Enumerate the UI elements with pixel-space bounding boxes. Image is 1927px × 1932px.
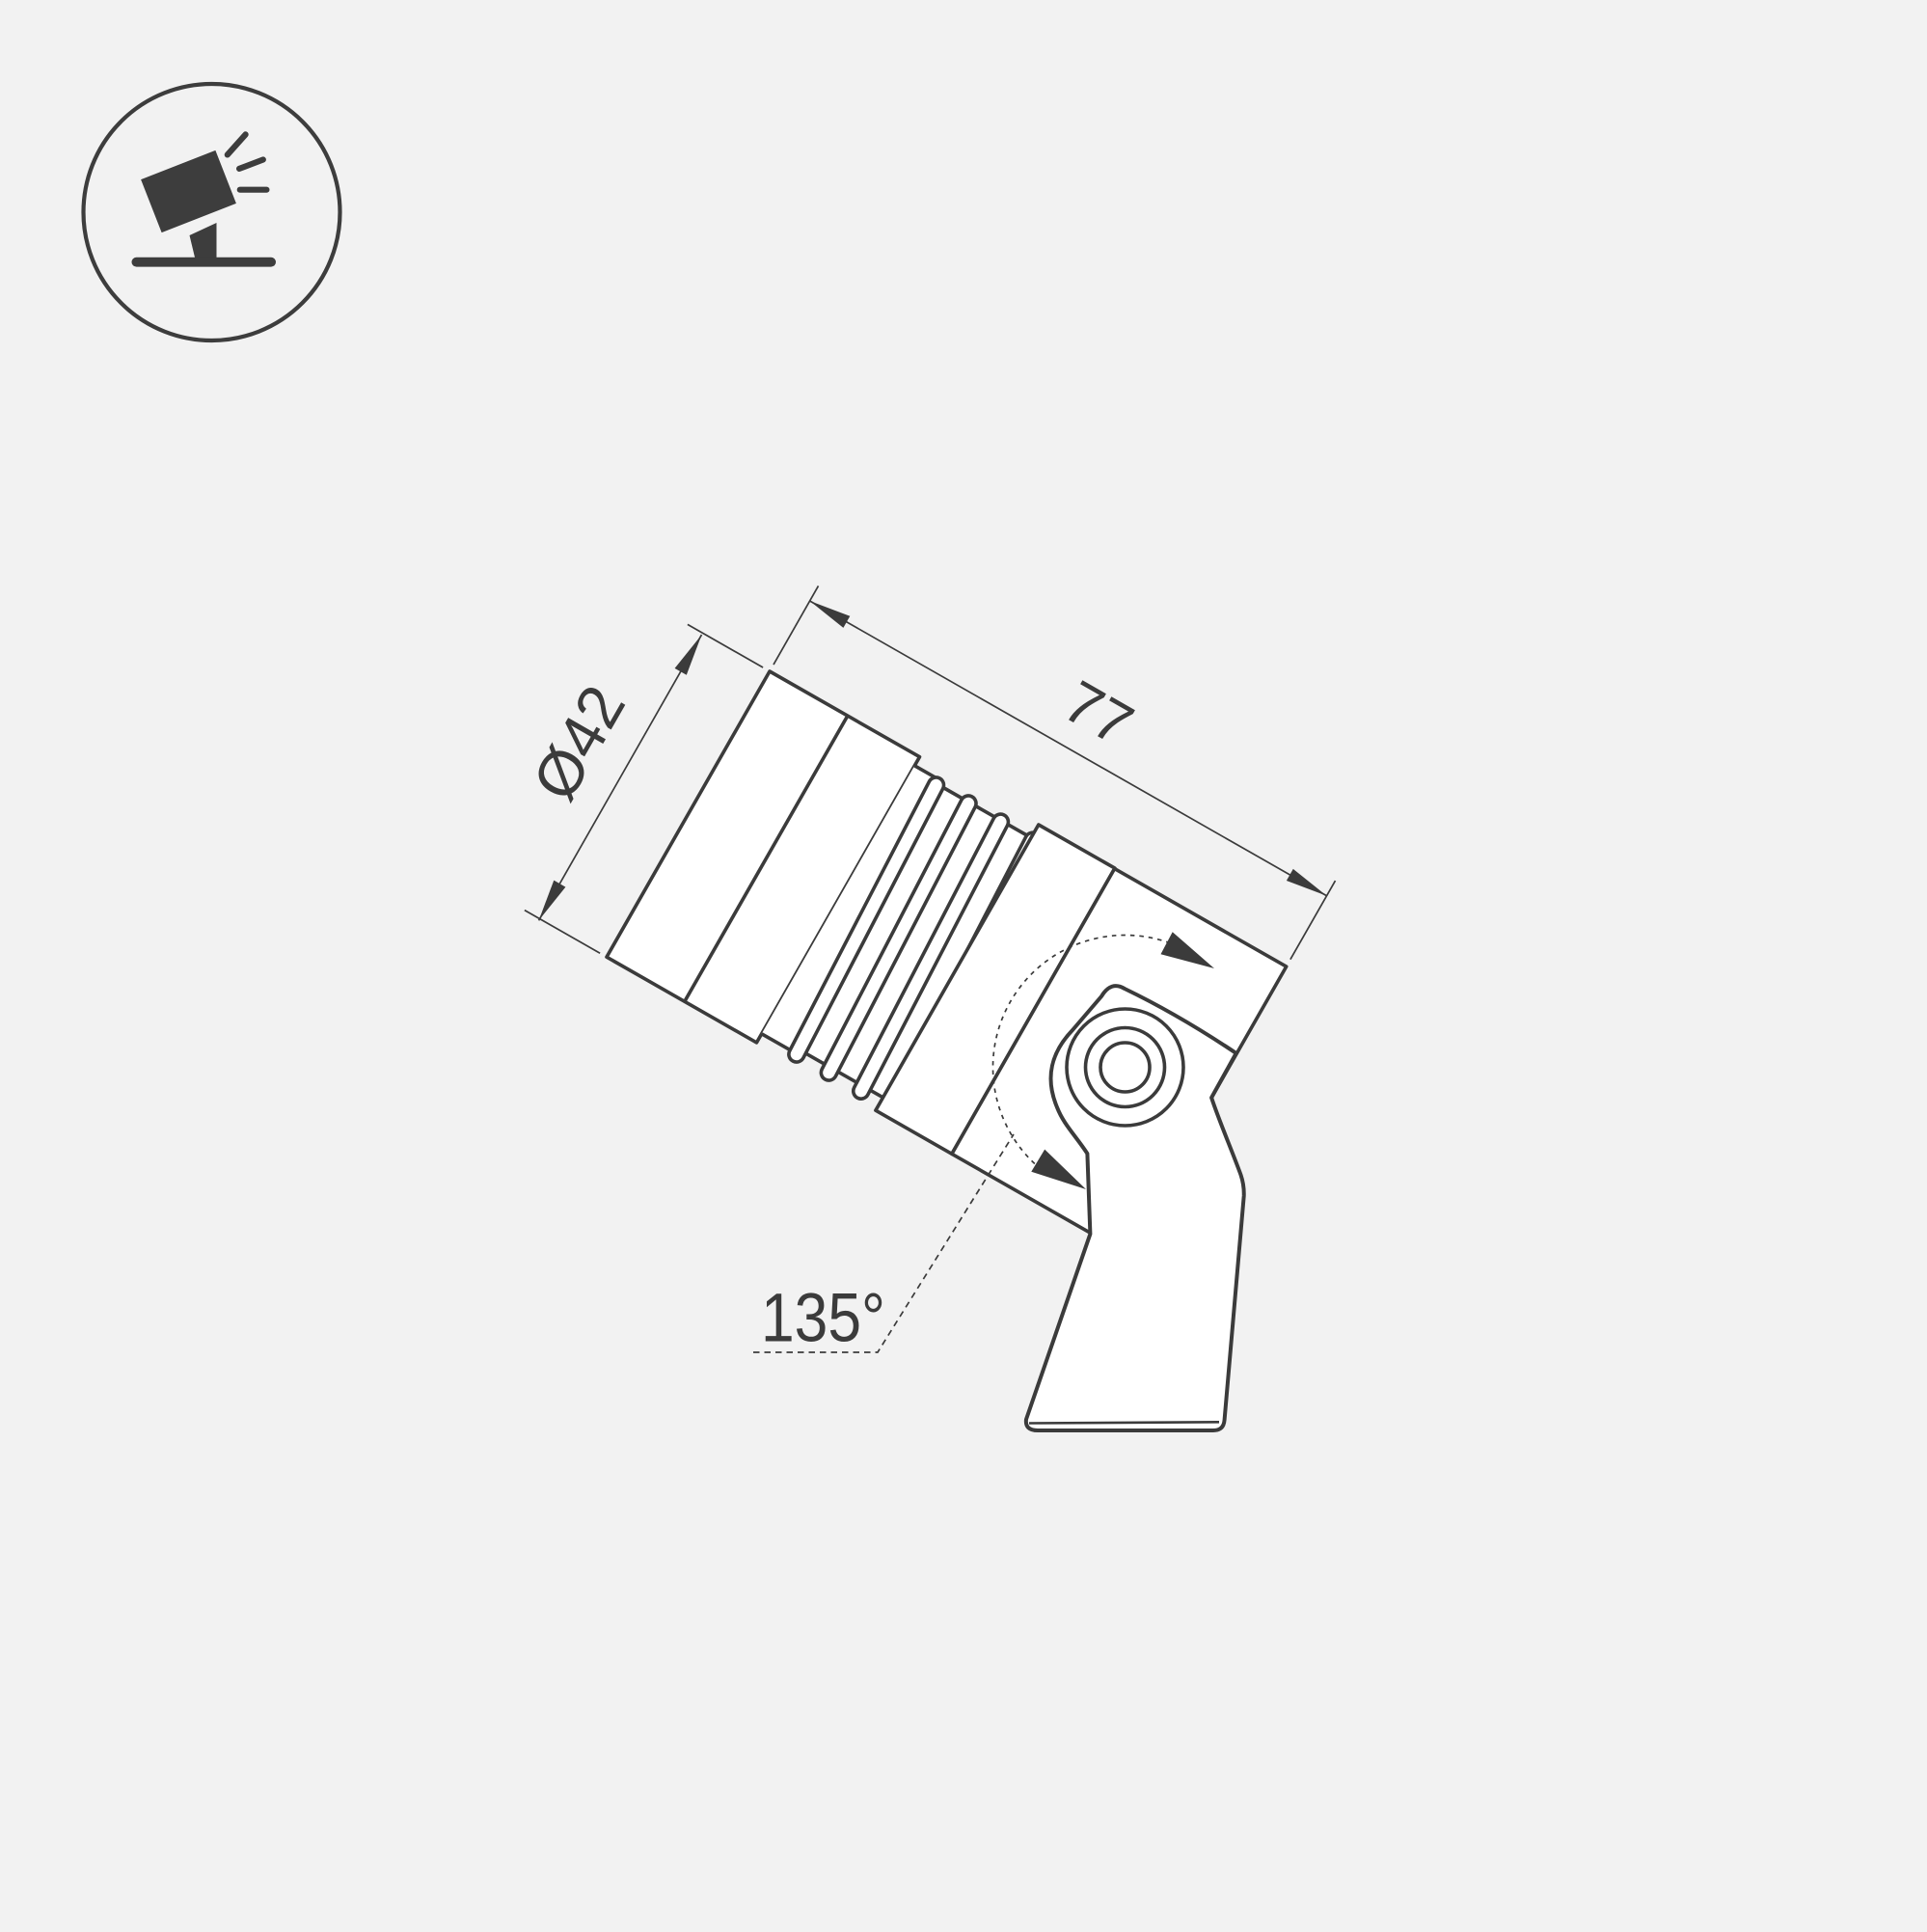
- svg-text:135°: 135°: [761, 1279, 885, 1356]
